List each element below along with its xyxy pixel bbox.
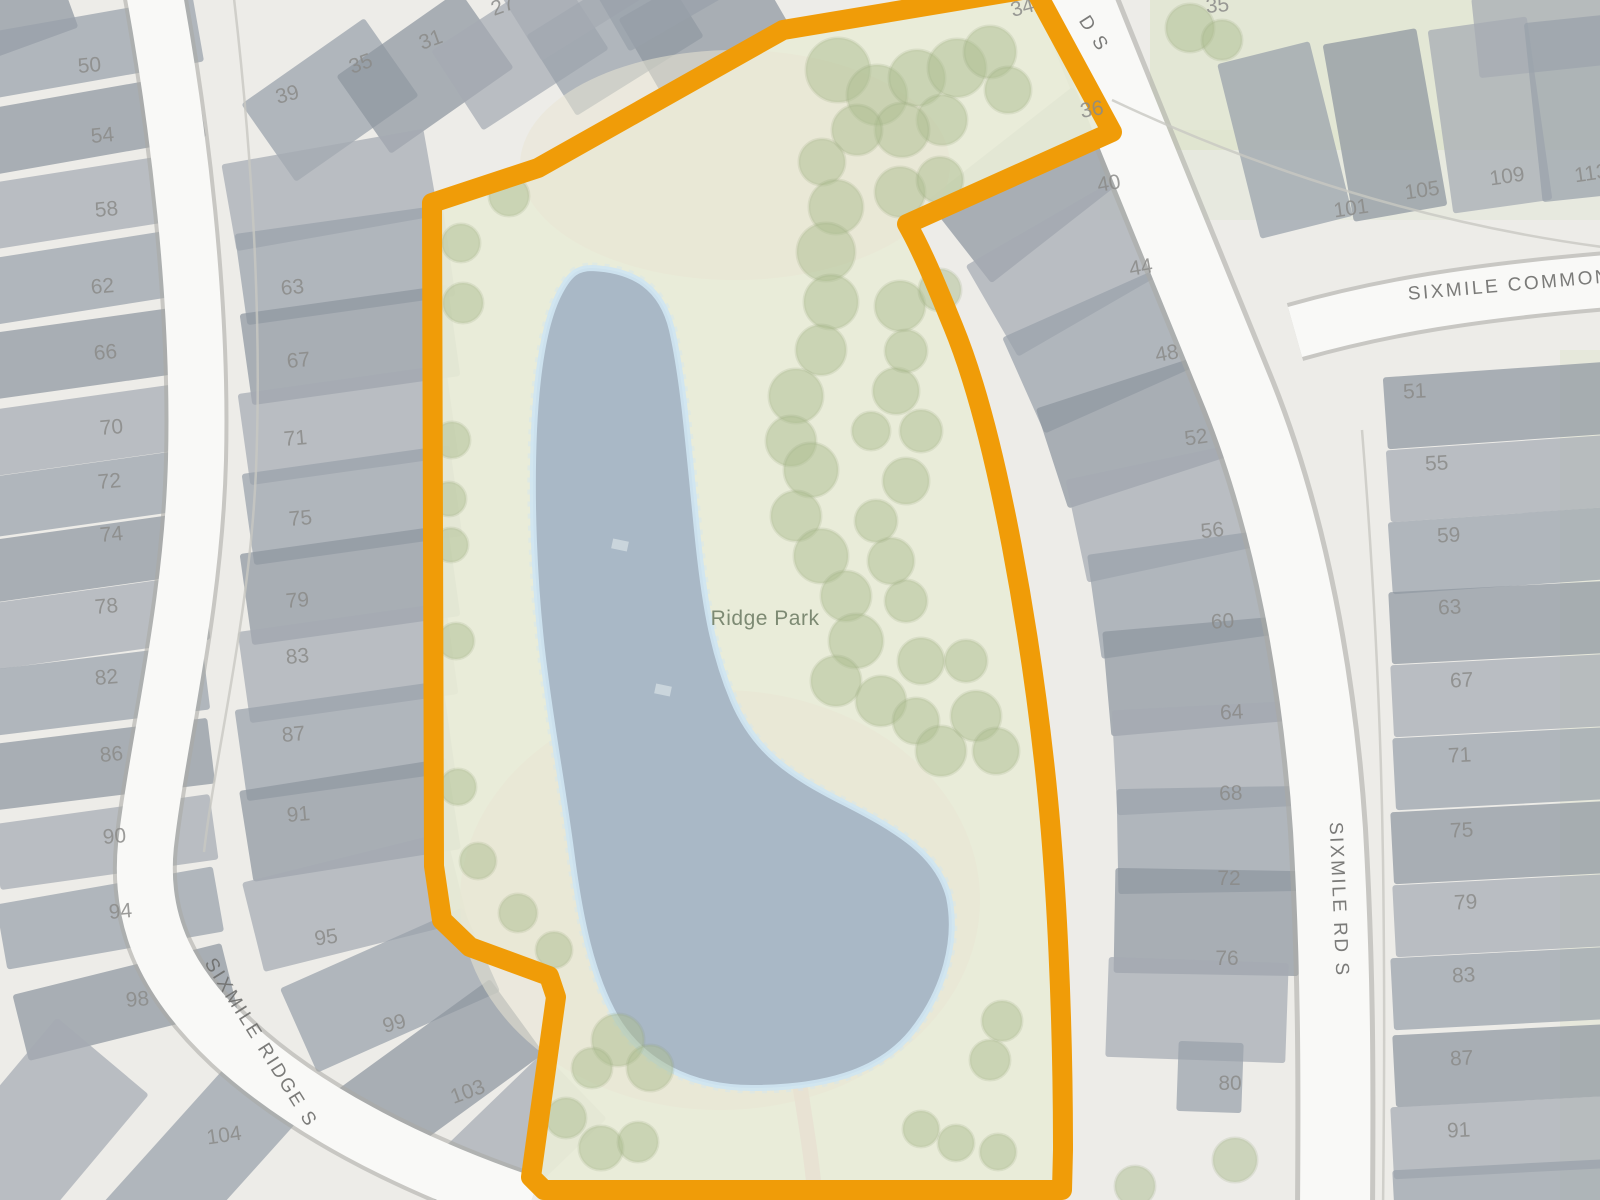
house-number-label: 91	[286, 802, 311, 827]
tree-icon	[821, 571, 871, 621]
house-number-label: 62	[90, 274, 115, 299]
aerial-map-canvas: Ridge Park SIXMILE RIDGE S SIXMILE RD S …	[0, 0, 1600, 1200]
tree-icon	[438, 623, 474, 659]
house-number-label: 113	[1573, 160, 1600, 187]
house-number-label: 48	[1153, 340, 1180, 367]
house-number-label: 82	[94, 665, 119, 690]
tree-icon	[796, 325, 846, 375]
map-viewport[interactable]: Ridge Park SIXMILE RIDGE S SIXMILE RD S …	[0, 0, 1600, 1200]
tree-icon	[883, 458, 929, 504]
house-number-label: 104	[205, 1122, 243, 1150]
house-number-label: 94	[108, 899, 134, 924]
tree-icon	[442, 224, 480, 262]
tree-icon	[799, 139, 845, 185]
tree-icon	[852, 412, 890, 450]
tree-icon	[938, 1125, 974, 1161]
house-number-label: 109	[1488, 163, 1526, 191]
tree-icon	[945, 640, 987, 682]
house-number-label: 66	[93, 340, 118, 365]
tree-icon	[460, 843, 496, 879]
house-number-label: 63	[280, 275, 305, 300]
building-footprint	[1390, 800, 1600, 884]
tree-icon	[546, 1098, 586, 1138]
tree-icon	[980, 1134, 1016, 1170]
house-number-label: 35	[1205, 0, 1230, 18]
house-number-label: 86	[99, 742, 124, 767]
tree-icon	[572, 1048, 612, 1088]
house-number-label: 68	[1219, 782, 1243, 806]
house-number-label: 101	[1332, 195, 1370, 223]
house-number-label: 83	[285, 644, 310, 669]
house-number-label: 64	[1219, 700, 1244, 724]
house-number-label: 58	[94, 197, 119, 222]
house-number-label: 80	[1218, 1072, 1241, 1095]
house-number-label: 60	[1210, 609, 1235, 634]
house-number-label: 105	[1403, 177, 1441, 205]
tree-icon	[784, 443, 838, 497]
house-number-label: 56	[1200, 518, 1226, 543]
house-number-label: 55	[1424, 451, 1449, 475]
tree-icon	[440, 769, 476, 805]
building-footprint	[1392, 873, 1600, 957]
tree-icon	[1115, 1166, 1155, 1200]
house-number-label: 72	[97, 469, 122, 494]
house-number-label: 67	[1449, 668, 1474, 692]
house-number-label: 83	[1451, 963, 1476, 987]
house-number-label: 70	[99, 415, 124, 440]
house-number-label: 54	[90, 123, 116, 148]
tree-icon	[618, 1122, 658, 1162]
house-number-label: 67	[286, 348, 311, 373]
house-number-label: 71	[1447, 743, 1472, 767]
house-number-label: 76	[1215, 947, 1238, 970]
tree-icon	[769, 369, 823, 423]
tree-icon	[875, 281, 925, 331]
house-number-label: 98	[125, 987, 150, 1012]
house-number-label: 63	[1437, 595, 1462, 619]
tree-icon	[873, 368, 919, 414]
tree-icon	[970, 1040, 1010, 1080]
building-footprint	[1392, 726, 1600, 810]
building-footprint	[1388, 580, 1600, 664]
building-footprint	[1390, 653, 1600, 737]
house-number-label: 71	[283, 426, 308, 451]
house-number-label: 90	[102, 824, 127, 849]
tree-icon	[903, 1111, 939, 1147]
tree-icon	[627, 1045, 673, 1091]
house-number-label: 50	[77, 53, 102, 78]
house-number-label: 40	[1095, 170, 1122, 197]
tree-icon	[1202, 20, 1242, 60]
tree-icon	[579, 1126, 623, 1170]
house-number-label: 87	[1449, 1046, 1474, 1070]
park-name-label: Ridge Park	[711, 607, 820, 630]
tree-icon	[1213, 1138, 1257, 1182]
tree-icon	[804, 275, 858, 329]
house-number-label: 75	[288, 506, 313, 531]
building-footprint	[1392, 1023, 1600, 1107]
house-number-label: 74	[99, 522, 125, 547]
tree-icon	[443, 283, 483, 323]
house-number-label: 95	[313, 925, 339, 951]
tree-icon	[985, 67, 1031, 113]
tree-icon	[855, 500, 897, 542]
building-footprint	[1390, 946, 1600, 1030]
house-number-label: 44	[1127, 254, 1154, 281]
tree-icon	[900, 410, 942, 452]
house-number-label: 87	[281, 722, 306, 747]
tree-icon	[868, 538, 914, 584]
tree-icon	[885, 580, 927, 622]
house-number-label: 59	[1436, 523, 1461, 547]
house-number-label: 79	[1453, 890, 1478, 914]
tree-icon	[898, 638, 944, 684]
house-number-label: 36	[1078, 96, 1105, 123]
house-number-label: 91	[1446, 1118, 1471, 1142]
house-number-label: 51	[1402, 379, 1427, 403]
house-number-label: 52	[1183, 425, 1209, 451]
house-number-label: 78	[94, 594, 119, 619]
tree-icon	[885, 330, 927, 372]
tree-icon	[973, 728, 1019, 774]
tree-icon	[499, 894, 537, 932]
tree-icon	[797, 223, 855, 281]
tree-icon	[982, 1001, 1022, 1041]
house-number-label: 72	[1217, 867, 1240, 890]
house-number-label: 79	[285, 588, 310, 613]
house-number-label: 75	[1449, 818, 1474, 842]
tree-icon	[811, 656, 861, 706]
